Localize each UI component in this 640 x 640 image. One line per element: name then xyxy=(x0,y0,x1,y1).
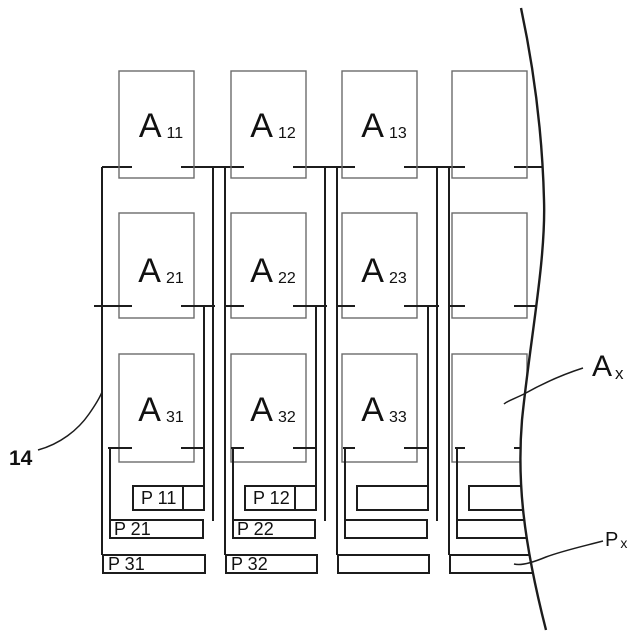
label-a-21: A21 xyxy=(138,252,184,290)
figure-body: A11A21A31P 11P 21P 31A12A22A32P 12P 22P … xyxy=(94,71,560,574)
leader-line-14 xyxy=(38,392,102,450)
outer-container-col4 xyxy=(449,167,549,555)
label-P-12: P 12 xyxy=(253,488,290,508)
block-a-row2-col4 xyxy=(452,213,527,318)
label-a-33: A33 xyxy=(361,391,407,429)
label-a-32: A32 xyxy=(250,391,296,429)
ref-label-14: 14 xyxy=(9,447,33,470)
label-P-31: P 31 xyxy=(108,554,145,574)
figure-canvas: A11A21A31P 11P 21P 31A12A22A32P 12P 22P … xyxy=(0,0,640,640)
pad-p2-col3 xyxy=(345,520,427,538)
pad-p3-col3 xyxy=(338,555,429,573)
block-a-row1-col4 xyxy=(452,71,527,178)
label-px: Px xyxy=(605,529,627,551)
label-P-32: P 32 xyxy=(231,554,268,574)
label-a-23: A23 xyxy=(361,252,407,290)
label-a-22: A22 xyxy=(250,252,296,290)
break-line-curve xyxy=(520,8,546,630)
outer-container-col3 xyxy=(337,167,437,555)
pad-p1-col4 xyxy=(469,486,540,510)
label-P-22: P 22 xyxy=(237,519,274,539)
patent-figure: A11A21A31P 11P 21P 31A12A22A32P 12P 22P … xyxy=(0,0,640,640)
pad-p1-col3 xyxy=(357,486,428,510)
label-a-11: A11 xyxy=(139,107,183,145)
label-a-13: A13 xyxy=(361,107,407,145)
label-P-21: P 21 xyxy=(114,519,151,539)
leader-line-ax xyxy=(504,368,583,404)
label-a-31: A31 xyxy=(138,391,184,429)
label-ax: Ax xyxy=(592,350,624,383)
label-a-12: A12 xyxy=(250,107,296,145)
label-P-11: P 11 xyxy=(141,488,176,508)
block-a-row3-col4 xyxy=(452,354,527,462)
